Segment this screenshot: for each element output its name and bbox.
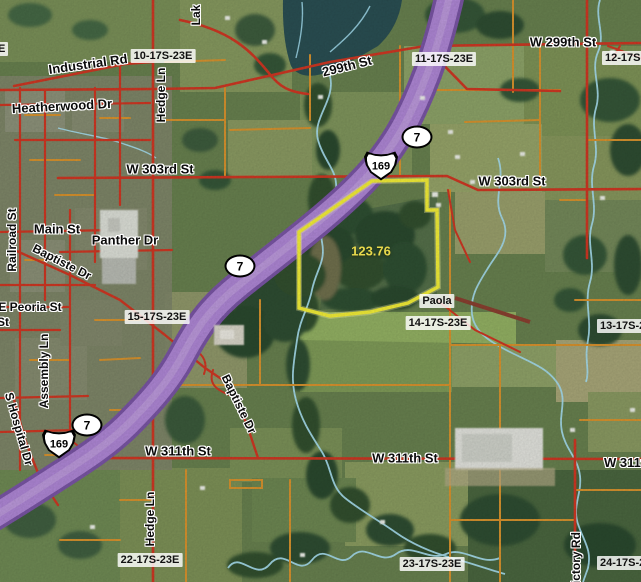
photo-grain-overlay xyxy=(0,0,641,582)
route-7-text: 7 xyxy=(84,418,91,432)
route-7-text: 7 xyxy=(237,259,244,273)
aerial-parcel-map[interactable]: Industrial Rd Heatherwood Dr Hedge Ln La… xyxy=(0,0,641,582)
map-canvas xyxy=(0,0,641,582)
route-7-text: 7 xyxy=(414,130,421,144)
route-7-shield-north: 7 xyxy=(402,126,433,149)
route-7-shield-south: 7 xyxy=(72,414,103,437)
route-7-shield-middle: 7 xyxy=(225,255,256,278)
